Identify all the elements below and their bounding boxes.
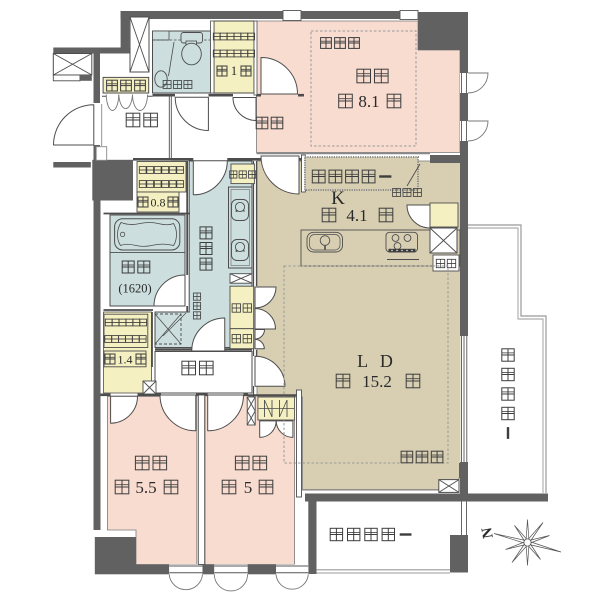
svg-text:1.4: 1.4 (118, 353, 133, 367)
svg-text:4.1: 4.1 (346, 206, 367, 225)
svg-text:1: 1 (231, 64, 237, 78)
svg-text:8.1: 8.1 (358, 92, 379, 111)
svg-text:(1620): (1620) (118, 282, 151, 296)
svg-text:5.5: 5.5 (135, 478, 156, 497)
svg-text:0.8: 0.8 (151, 196, 166, 210)
svg-text:L D: L D (357, 351, 397, 371)
svg-text:K: K (331, 188, 345, 209)
svg-text:5: 5 (244, 478, 253, 497)
svg-text:15.2: 15.2 (362, 372, 392, 391)
